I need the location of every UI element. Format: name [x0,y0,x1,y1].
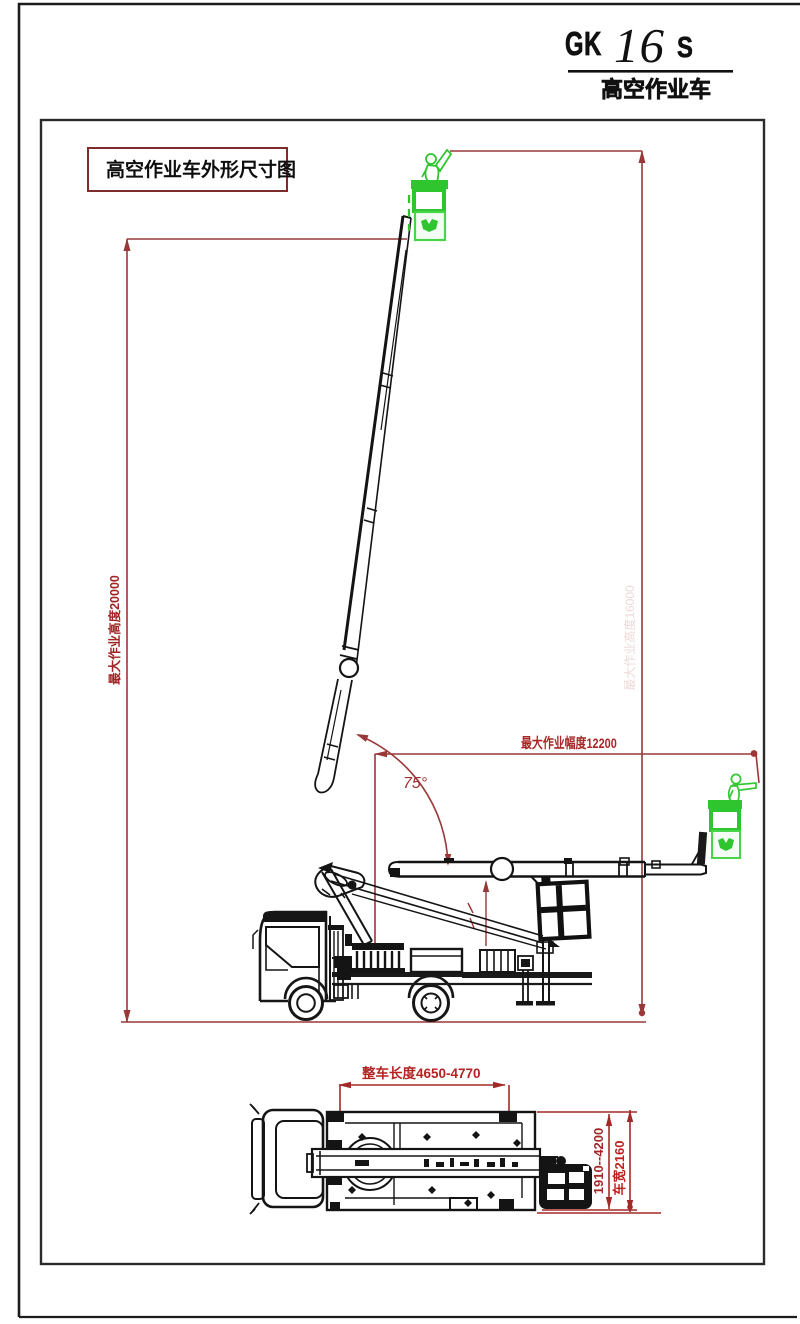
svg-text:高空作业车外形尺寸图: 高空作业车外形尺寸图 [106,158,296,181]
svg-text:车宽2160: 车宽2160 [612,1141,627,1196]
svg-text:最大作业高度16000: 最大作业高度16000 [622,585,637,691]
svg-text:16: 16 [614,18,665,73]
svg-text:1910--4200: 1910--4200 [591,1128,606,1195]
svg-text:S: S [677,31,693,64]
svg-text:75°: 75° [403,775,428,792]
svg-text:最大作业高度20000: 最大作业高度20000 [107,575,122,685]
svg-text:整车长度4650-4770: 整车长度4650-4770 [362,1065,481,1081]
svg-text:GK: GK [565,26,602,63]
svg-text:最大作业幅度12200: 最大作业幅度12200 [521,735,617,752]
svg-text:高空作业车: 高空作业车 [601,77,711,102]
